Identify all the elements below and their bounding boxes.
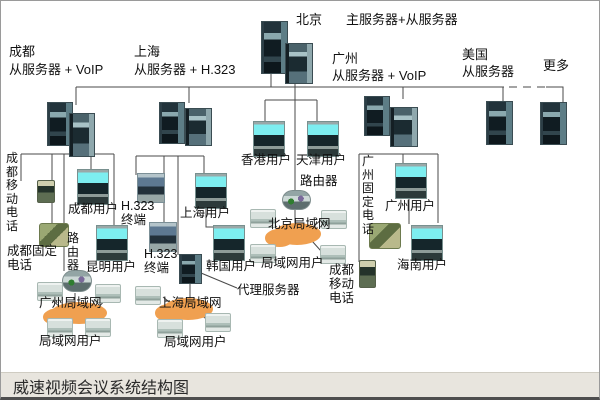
beijing-router-icon bbox=[282, 190, 311, 210]
connector-proxy-label bbox=[201, 273, 237, 288]
guangzhou-lan-users-label: 局域网用户 bbox=[39, 334, 102, 348]
shanghai-lan-users-label: 局域网用户 bbox=[164, 335, 227, 349]
chengdu-router-label: 路由器 bbox=[67, 232, 82, 273]
shanghai-server-tower-icon bbox=[159, 102, 185, 144]
chengdu-server-tower2-icon bbox=[69, 113, 95, 157]
shanghai-server-tower2-icon bbox=[185, 108, 212, 146]
guangzhou-city-label: 广州 bbox=[332, 52, 358, 66]
beijing-server-tower-icon bbox=[261, 21, 288, 74]
korea-user-label: 韩国用户 bbox=[206, 259, 256, 273]
chengdu-city-label: 成都 bbox=[9, 45, 35, 59]
guangzhou-lan-label: 广州局域网 bbox=[39, 296, 102, 310]
shanghai-lan-label: 上海局域网 bbox=[159, 296, 222, 310]
connector-main-bus bbox=[76, 87, 504, 105]
connector-more-corner bbox=[546, 87, 563, 103]
chengdu-server-label: 从服务器 + VoIP bbox=[9, 63, 103, 77]
chengdu-mobile-phone-label: 成都移动电话 bbox=[6, 152, 21, 233]
network-diagram: 北京 主服务器+从服务器 成都 从服务器 + VoIP 上海 从服务器 + H.… bbox=[0, 0, 600, 400]
proxy-server-label: 代理服务器 bbox=[237, 283, 300, 297]
chengdu-fixed-phone-label: 成都固定电话 bbox=[7, 244, 63, 272]
chengdu-mobile-phone-icon bbox=[359, 260, 376, 288]
hainan-user-monitor-icon bbox=[411, 225, 443, 261]
beijing-lan-users-label: 局域网用户 bbox=[261, 256, 324, 270]
shanghai-user-label: 上海用户 bbox=[180, 206, 230, 220]
beijing-server-label: 主服务器+从服务器 bbox=[346, 13, 458, 27]
caption-text: 威速视频会议系统结构图 bbox=[13, 374, 189, 398]
chengdu-user-label: 成都用户 bbox=[68, 202, 118, 216]
guangzhou-user-label: 广州用户 bbox=[385, 199, 435, 213]
h323-terminal-label: H.323 终端 bbox=[121, 199, 163, 227]
shanghai-city-label: 上海 bbox=[134, 45, 160, 59]
usa-server-label: 从服务器 bbox=[462, 65, 514, 79]
usa-city-label: 美国 bbox=[462, 48, 488, 62]
kunming-user-monitor-icon bbox=[96, 225, 128, 261]
kunming-user-label: 昆明用户 bbox=[86, 260, 136, 274]
guangzhou-server-tower2-icon bbox=[390, 107, 418, 147]
beijing-router-label: 路由器 bbox=[300, 174, 338, 188]
hongkong-user-monitor-icon bbox=[253, 121, 285, 157]
h323-terminal-label: H.323 终端 bbox=[144, 247, 186, 275]
caption-bar: 威速视频会议系统结构图 bbox=[1, 372, 599, 398]
hainan-user-label: 海南用户 bbox=[397, 258, 447, 272]
tianjin-user-monitor-icon bbox=[307, 121, 339, 157]
more-server-tower-icon bbox=[540, 102, 567, 145]
more-label: 更多 bbox=[543, 59, 569, 73]
shanghai-user-monitor-icon bbox=[195, 173, 227, 209]
hongkong-user-label: 香港用户 bbox=[241, 153, 291, 167]
guangzhou-server-tower-icon bbox=[364, 96, 390, 136]
chengdu-user-monitor-icon bbox=[77, 169, 109, 205]
chengdu-mobile-phone-icon bbox=[37, 180, 55, 203]
beijing-server-tower2-icon bbox=[285, 43, 313, 84]
beijing-city-label: 北京 bbox=[296, 13, 322, 27]
chengdu-mobile-phone-label: 成都移动电话 bbox=[329, 263, 359, 305]
guangzhou-fixed-phone-label: 广州固定电话 bbox=[362, 155, 377, 236]
korea-user-monitor-icon bbox=[213, 225, 245, 261]
shanghai-server-label: 从服务器 + H.323 bbox=[134, 63, 236, 77]
tianjin-user-label: 天津用户 bbox=[296, 153, 346, 167]
usa-server-tower-icon bbox=[486, 101, 513, 145]
beijing-lan-label: 北京局域网 bbox=[268, 217, 331, 231]
guangzhou-server-label: 从服务器 + VoIP bbox=[332, 69, 426, 83]
shanghai-lan-laptop-icon bbox=[205, 313, 231, 332]
guangzhou-user-monitor-icon bbox=[395, 163, 427, 199]
shanghai-lan-laptop-icon bbox=[135, 286, 161, 305]
